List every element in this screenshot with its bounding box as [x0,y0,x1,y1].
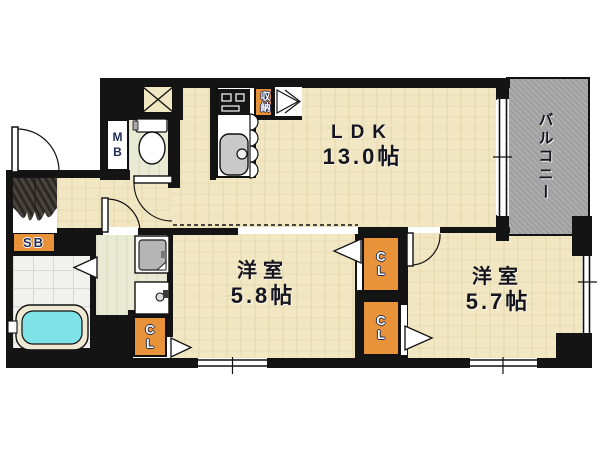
wall [496,215,509,241]
doorway-washroom [103,227,138,235]
wall [90,315,133,362]
window-bedroom-b [470,358,537,368]
storage-label: 収納 [256,89,271,115]
washroom-floor [96,228,170,315]
closet-bottom: CL [362,300,400,356]
meter-box-label: MB [108,121,127,169]
closet-label: CL [364,302,398,354]
entrance-door-leaf [12,127,18,172]
bedroom-b-size: 5.7帖 [408,289,588,315]
bedroom-b-label: 洋室 5.7帖 [408,266,588,315]
closet-door-strip [401,305,407,355]
bathroom-floor [13,252,90,352]
wall [6,170,110,178]
storage-closet: 収納 [254,87,273,117]
bedroom-b-name: 洋室 [408,266,588,289]
bedroom-a-size: 5.8帖 [178,283,348,309]
bedroom-a-label: 洋室 5.8帖 [178,260,348,309]
doorway-bedroom-b [408,227,440,233]
ldk-name: LDK [255,122,470,144]
toilet-floor [128,115,170,180]
closet-label: CL [364,238,398,290]
wall [572,216,592,256]
ldk-label: LDK 13.0帖 [255,122,470,170]
window-bedroom-a [198,358,267,368]
wall [167,310,173,337]
floorplan: MB SB 収納 CL CL CL [0,0,600,450]
hall-floor [57,178,170,233]
kitchen-counter [216,86,256,178]
storage-bifold-door [275,87,302,116]
shaft-box: SB [12,232,56,253]
window-ldk-balcony [497,99,509,216]
bedroom-a-name: 洋室 [178,260,348,283]
balcony-label: バルコニー [527,92,563,222]
wall [6,170,13,358]
closet-top: CL [362,236,400,292]
entrance-door-swing [18,129,59,171]
sliding-opening [238,227,358,234]
entrance-floor [13,178,57,233]
meter-box: MB [106,119,129,171]
wall [138,228,238,235]
pipe-space [143,86,173,113]
closet-door-strip [167,337,173,357]
wall [167,233,173,310]
shaft-box-label: SB [14,234,54,251]
ldk-size: 13.0帖 [255,144,470,170]
wall [100,88,130,120]
closet-label: CL [135,318,165,355]
closet-bedroom-a: CL [133,316,167,357]
